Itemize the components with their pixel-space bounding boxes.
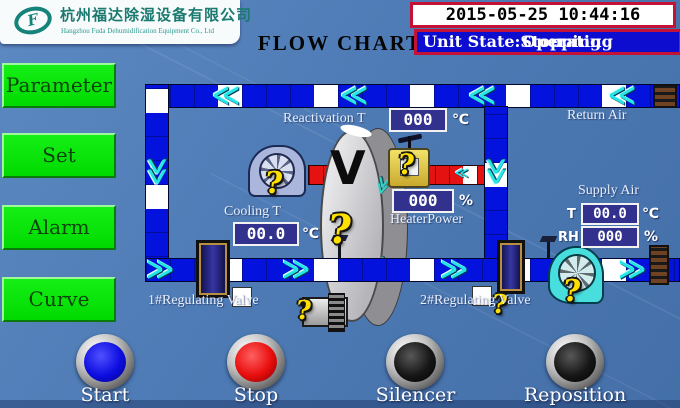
supply-air-rh-label: RH [558, 230, 579, 245]
sidebar-item-curve[interactable]: Curve [2, 277, 116, 322]
pipe-left-riser [145, 84, 169, 282]
silencer-button-label: Silencer [358, 384, 473, 406]
hmi-flow-chart-screen: F 杭州福达除湿设备有限公司 Hangzhou Fuda Dehumidific… [0, 0, 680, 408]
regulating-valve-1-label: 1#Regulating Valve [148, 293, 259, 309]
start-button[interactable] [76, 334, 134, 390]
heater-icon [386, 136, 434, 192]
return-air-label: Return Air [567, 108, 627, 124]
silencer-button[interactable] [386, 334, 444, 390]
cooling-t-unit: ℃ [302, 226, 319, 242]
company-name-chinese: 杭州福达除湿设备有限公司 [60, 6, 252, 24]
supply-air-t-label: T [567, 207, 576, 222]
reactivation-t-value[interactable]: 000 [389, 108, 447, 132]
damper-icon [649, 245, 669, 285]
reposition-button-label: Reposition [505, 384, 645, 406]
damper-icon [653, 84, 677, 108]
regulating-valve-2-icon [497, 240, 525, 294]
start-button-lens [84, 342, 126, 382]
reposition-button[interactable] [546, 334, 604, 390]
silencer-button-lens [394, 342, 436, 382]
heater-power-unit: % [459, 193, 473, 209]
company-name-english: Hangzhou Fuda Dehumidification Equipment… [61, 27, 214, 35]
reactivation-fan-icon [248, 141, 312, 203]
reactivation-t-unit: ℃ [452, 112, 469, 128]
datetime-display: 2015-05-25 10:44:16 [410, 2, 676, 28]
regulating-valve-2-label: 2#Regulating Valve [420, 293, 531, 309]
sidebar-item-alarm[interactable]: Alarm [2, 205, 116, 250]
reposition-button-lens [554, 342, 596, 382]
heater-power-value[interactable]: 000 [392, 189, 454, 213]
start-button-label: Start [55, 384, 155, 406]
supply-air-rh-unit: % [644, 229, 658, 245]
company-logo-icon: F [11, 3, 54, 38]
page-title: FLOW CHART [240, 31, 440, 55]
unit-state-display: Unit State:StoppingOperating [414, 29, 680, 55]
motor-grill [328, 293, 345, 332]
fan-wheel [558, 254, 596, 292]
unit-state-value-operating: Operating [522, 32, 612, 52]
stop-button[interactable] [227, 334, 285, 390]
unit-state-value-overlap: StoppingOperating [520, 32, 660, 52]
heater-window [400, 158, 419, 176]
cooling-t-value[interactable]: 00.0 [233, 222, 299, 246]
cooling-t-label: Cooling T [224, 204, 281, 220]
pipe-right-downcomer [484, 106, 508, 260]
supply-air-t-value[interactable]: 00.0 [581, 203, 639, 225]
stop-button-label: Stop [221, 384, 291, 406]
supply-fan-icon [548, 242, 608, 314]
temperature-sensor-icon [338, 241, 341, 258]
rotor-motor-icon [292, 292, 350, 332]
supply-air-label: Supply Air [578, 183, 639, 199]
heater-valve-stem [408, 136, 411, 148]
sidebar-item-parameter[interactable]: Parameter [2, 63, 116, 108]
sidebar-item-set[interactable]: Set [2, 133, 116, 178]
company-logo-panel: F 杭州福达除湿设备有限公司 Hangzhou Fuda Dehumidific… [0, 0, 240, 44]
regulating-valve-1-icon [196, 240, 230, 298]
heater-power-label: HeaterPower [390, 212, 463, 228]
return-air-pipe-top [145, 84, 680, 108]
supply-air-t-unit: ℃ [642, 206, 659, 222]
supply-air-rh-value[interactable]: 000 [581, 226, 639, 248]
logo-letter: F [26, 10, 41, 30]
unit-state-label: Unit State: [423, 32, 520, 51]
stop-button-lens [235, 342, 277, 382]
fan-wheel [259, 153, 295, 189]
rotor-mark: V [330, 144, 366, 192]
reactivation-t-label: Reactivation T [283, 111, 366, 127]
